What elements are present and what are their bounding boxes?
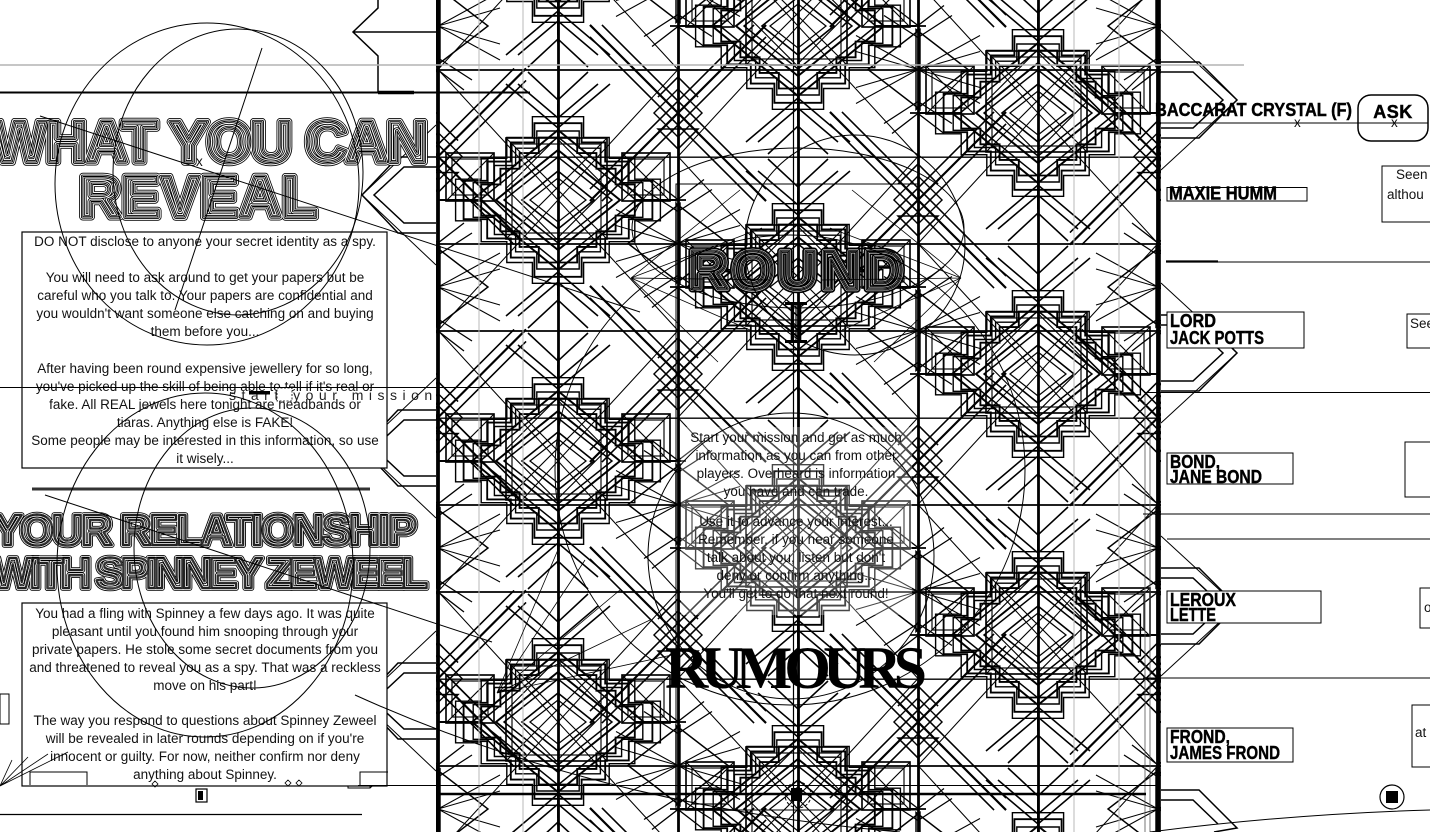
svg-text:RUMOURS: RUMOURS <box>665 635 927 701</box>
svg-text:it wisely...: it wisely... <box>176 451 234 466</box>
svg-text:BACCARAT CRYSTAL (F): BACCARAT CRYSTAL (F) <box>1155 100 1352 120</box>
svg-text:you have and can trade.: you have and can trade. <box>724 484 869 499</box>
svg-text:players. Overheard is informat: players. Overheard is information <box>697 466 896 481</box>
svg-text:MAXIE HUMM: MAXIE HUMM <box>1169 184 1277 204</box>
svg-text:deny or confirm anything...: deny or confirm anything... <box>716 568 875 583</box>
svg-text:Seen: Seen <box>1396 167 1428 182</box>
svg-text:After having been round expens: After having been round expensive jewell… <box>37 361 372 376</box>
svg-text:them before you...: them before you... <box>151 324 260 339</box>
svg-text:you wouldn't want someone else: you wouldn't want someone else catching … <box>36 306 373 321</box>
svg-text:careful who you talk to. Your: careful who you talk to. Your papers are… <box>37 288 372 303</box>
svg-text:althou: althou <box>1387 187 1424 202</box>
svg-text:pleasant until you found him s: pleasant until you found him snooping th… <box>52 624 359 639</box>
svg-text:See: See <box>1410 316 1430 331</box>
svg-text:You had a fling with Spinney a: You had a fling with Spinney a few days … <box>35 606 374 621</box>
svg-text:Remember, if you hear someone: Remember, if you hear someone <box>698 532 894 547</box>
svg-text:information as you can from ot: information as you can from other <box>695 448 897 463</box>
svg-text:and threatened to reveal you a: and threatened to reveal you as a spy. T… <box>29 660 381 675</box>
svg-text:WITH SPINNEY ZEWEEL: WITH SPINNEY ZEWEEL <box>0 549 428 598</box>
svg-text:innocent or guilty. For now, n: innocent or guilty. For now, neither con… <box>50 749 360 764</box>
svg-text:will be revealed in later roun: will be revealed in later rounds dependi… <box>45 731 365 746</box>
svg-text:Start your mission and get as: Start your mission and get as much <box>690 430 902 445</box>
svg-text:JACK POTTS: JACK POTTS <box>1170 328 1264 348</box>
svg-text:tiaras. Anything else is FAKE!: tiaras. Anything else is FAKE! <box>117 415 293 430</box>
svg-text:YOUR RELATIONSHIP: YOUR RELATIONSHIP <box>0 506 417 555</box>
svg-text:private papers. He stole some: private papers. He stole some secret doc… <box>32 642 378 657</box>
svg-text:ROUND: ROUND <box>689 239 904 301</box>
svg-text:o: o <box>1424 600 1430 615</box>
svg-text:JAMES FROND: JAMES FROND <box>1170 743 1280 763</box>
svg-text:You'll get to do that next rou: You'll get to do that next round! <box>703 586 888 601</box>
svg-text:x: x <box>196 154 203 169</box>
svg-text:at: at <box>1415 725 1427 740</box>
svg-text:anything about Spinney.: anything about Spinney. <box>133 767 277 782</box>
svg-text:start your mission: start your mission <box>229 387 438 403</box>
svg-text:LETTE: LETTE <box>1170 605 1216 625</box>
svg-text:move on his part!: move on his part! <box>153 678 257 693</box>
svg-text:Use it to advance your interes: Use it to advance your interest... <box>699 514 893 529</box>
svg-text:Some people may be interested: Some people may be interested in this in… <box>31 433 378 448</box>
svg-text:JANE BOND: JANE BOND <box>1170 467 1262 487</box>
svg-text:The way you respond to questio: The way you respond to questions about S… <box>34 713 377 728</box>
svg-text:DO NOT disclose to anyone your: DO NOT disclose to anyone your secret id… <box>34 234 376 249</box>
svg-text:talk about you, listen but don: talk about you, listen but don't <box>707 550 885 565</box>
